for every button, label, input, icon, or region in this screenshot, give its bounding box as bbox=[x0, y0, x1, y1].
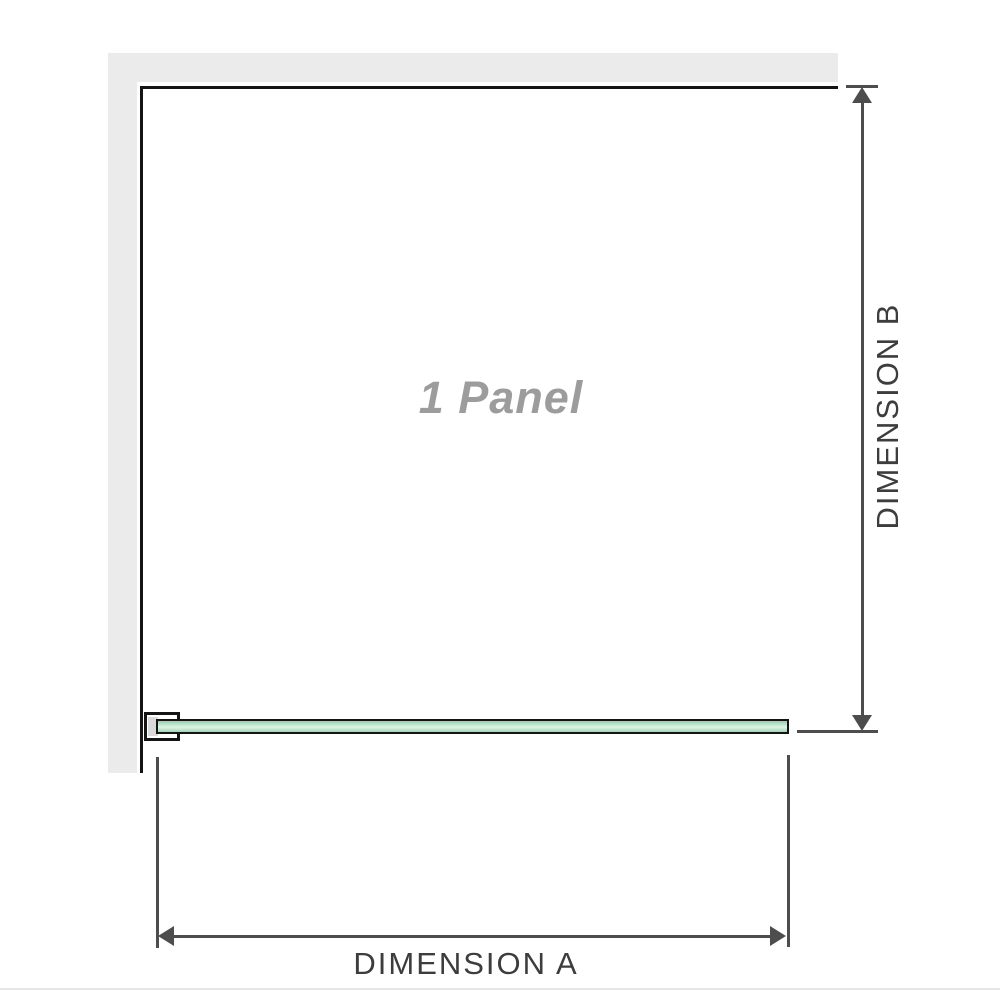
arrow-left-icon bbox=[158, 926, 174, 946]
wall-left bbox=[108, 53, 137, 773]
arrow-up-icon bbox=[852, 87, 872, 103]
shower-panel-diagram: 1 Panel DIMENSION B DIMENSION A bbox=[0, 0, 1000, 1000]
dimension-b-label: DIMENSION B bbox=[870, 303, 906, 530]
wall-inner-edge-left bbox=[140, 86, 143, 773]
panel-count-label: 1 Panel bbox=[419, 372, 584, 424]
glass-panel bbox=[156, 719, 789, 734]
dimension-b-line bbox=[861, 96, 864, 722]
dimension-a-line bbox=[168, 935, 776, 938]
wall-top bbox=[108, 53, 838, 82]
arrow-right-icon bbox=[770, 926, 786, 946]
extension-line-right bbox=[787, 755, 790, 947]
extension-line-left bbox=[156, 757, 159, 948]
footer-divider bbox=[0, 988, 1000, 990]
arrow-down-icon bbox=[852, 715, 872, 731]
dimension-a-label: DIMENSION A bbox=[353, 946, 578, 982]
wall-inner-edge-top bbox=[140, 86, 838, 89]
